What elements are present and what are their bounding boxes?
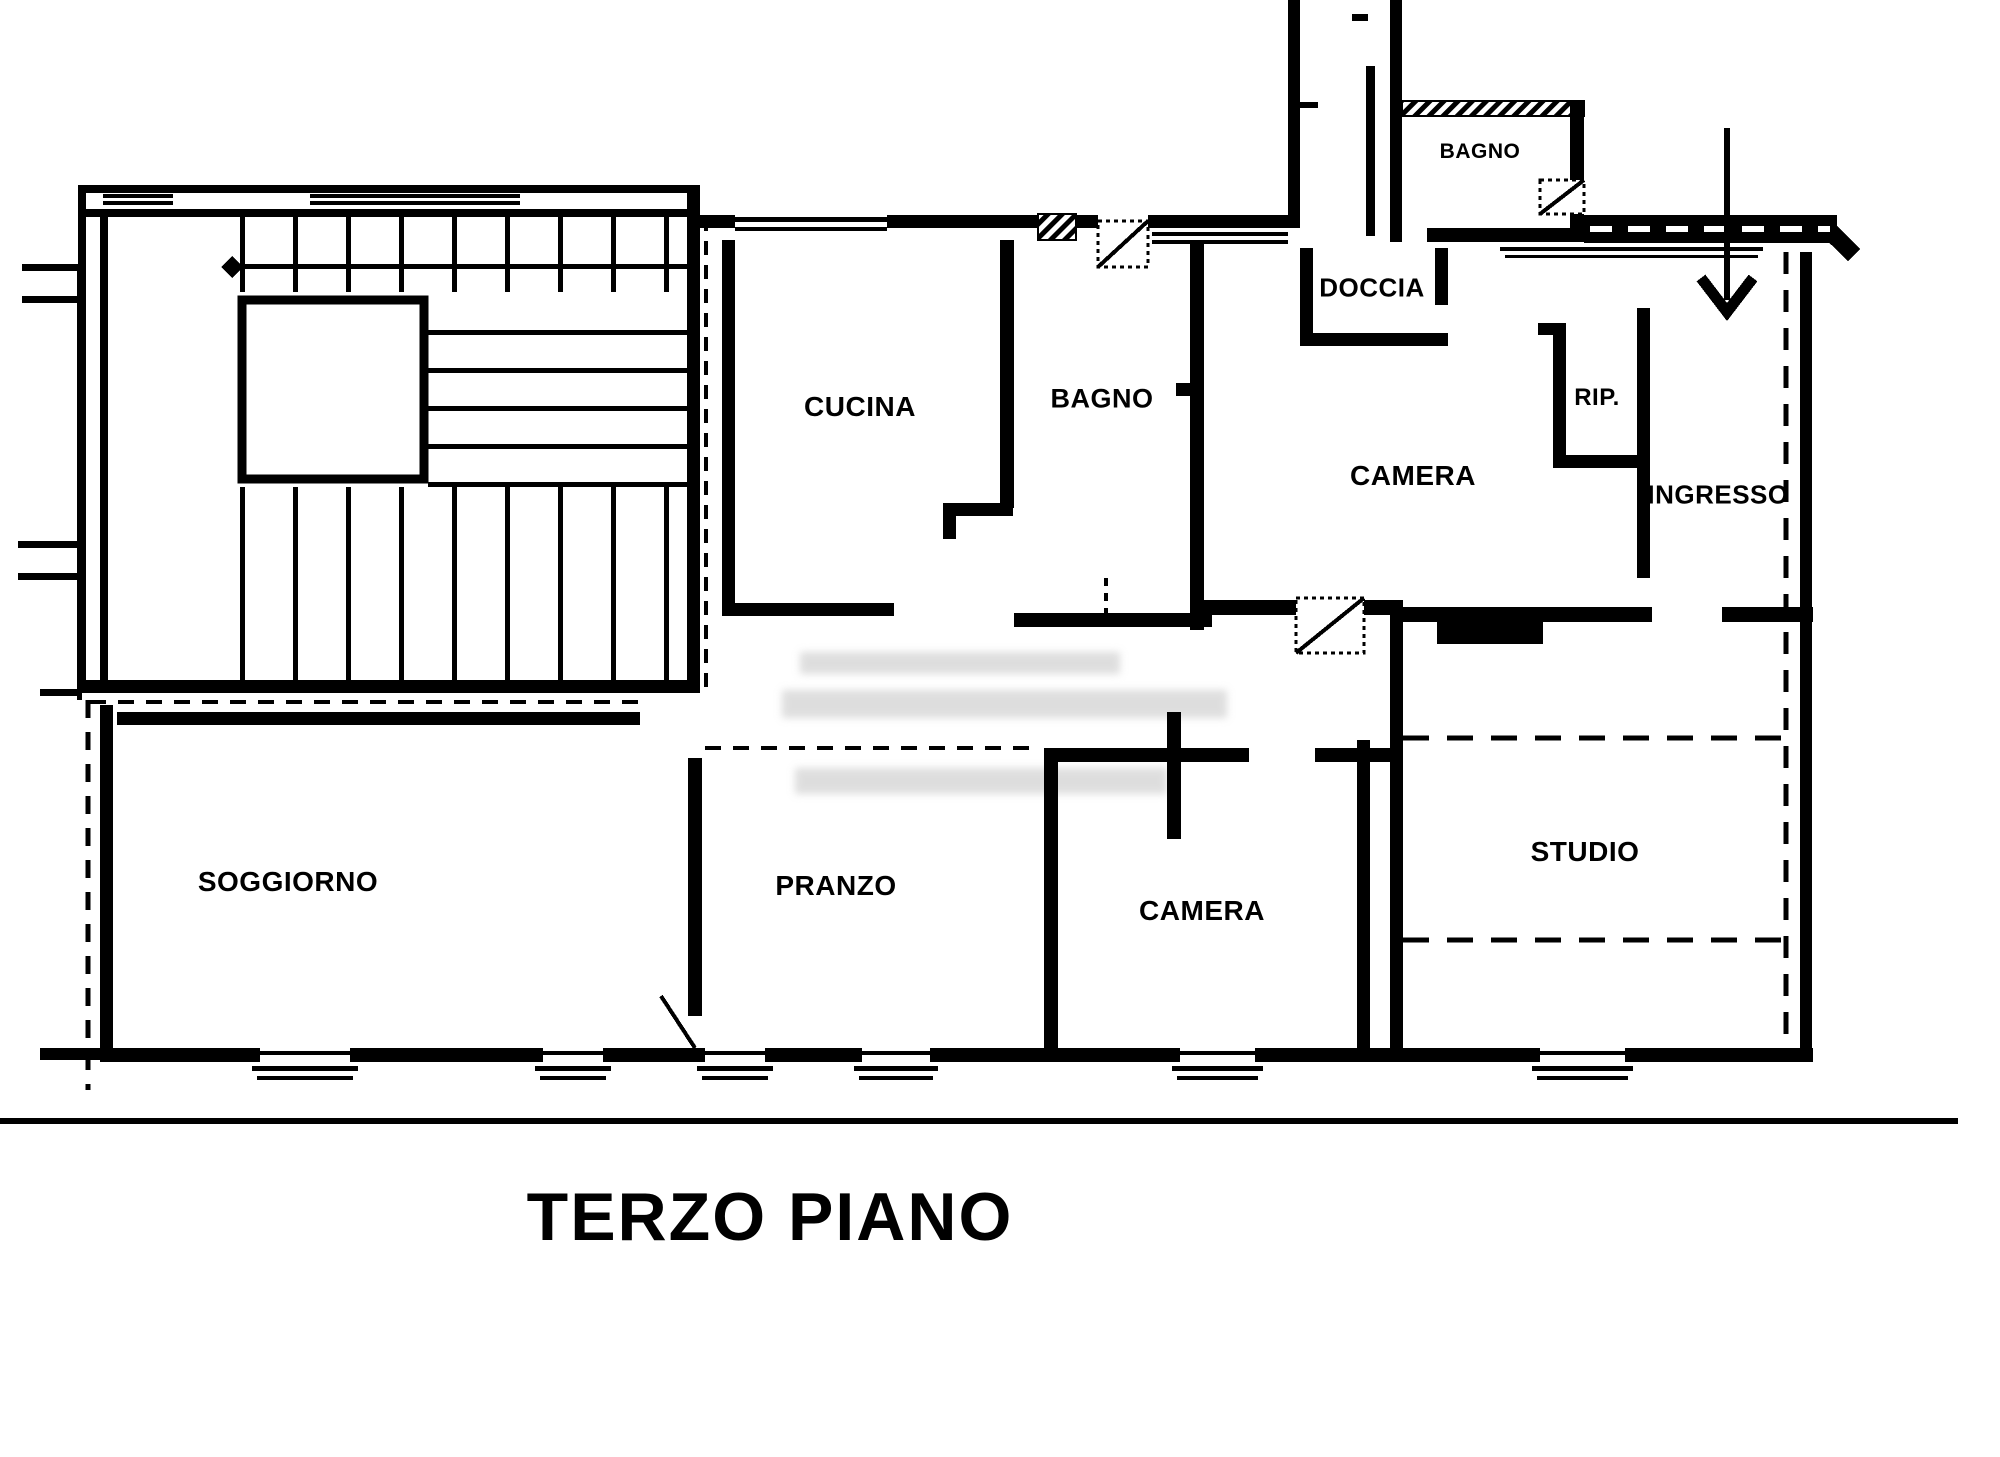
bathroom-window — [1540, 180, 1584, 214]
room-label-bagno-top: BAGNO — [1440, 140, 1521, 164]
bedroom-window-opening — [1296, 598, 1364, 653]
facade-line — [0, 1118, 1958, 1124]
stair-rail — [232, 264, 687, 269]
floor-plan-page: BAGNO DOCCIA CUCINA BAGNO CAMERA RIP. IN… — [0, 0, 2000, 1457]
room-label-camera-2: CAMERA — [1139, 895, 1265, 927]
room-label-soggiorno: SOGGIORNO — [198, 866, 378, 898]
room-label-studio: STUDIO — [1531, 836, 1640, 868]
room-label-cucina: CUCINA — [804, 391, 916, 423]
room-label-bagno: BAGNO — [1051, 384, 1154, 415]
room-label-doccia: DOCCIA — [1319, 273, 1425, 304]
small-hatched-window — [1038, 214, 1076, 240]
room-label-rip: RIP. — [1574, 384, 1620, 412]
stair-treads-return — [428, 330, 687, 487]
floor-title: TERZO PIANO — [527, 1178, 1014, 1256]
rip-closet — [1538, 308, 1650, 578]
shaft-chase — [1288, 0, 1402, 242]
staircase — [221, 217, 687, 680]
stair-treads-upper — [240, 217, 669, 292]
room-label-camera: CAMERA — [1350, 460, 1476, 492]
room-label-ingresso: INGRESSO — [1647, 480, 1788, 511]
room-label-pranzo: PRANZO — [775, 870, 896, 902]
stair-void — [242, 300, 424, 479]
stair-marker — [221, 256, 243, 278]
stair-treads-lower — [240, 487, 669, 680]
shaft-window — [1098, 221, 1148, 267]
watermark — [782, 652, 1227, 794]
